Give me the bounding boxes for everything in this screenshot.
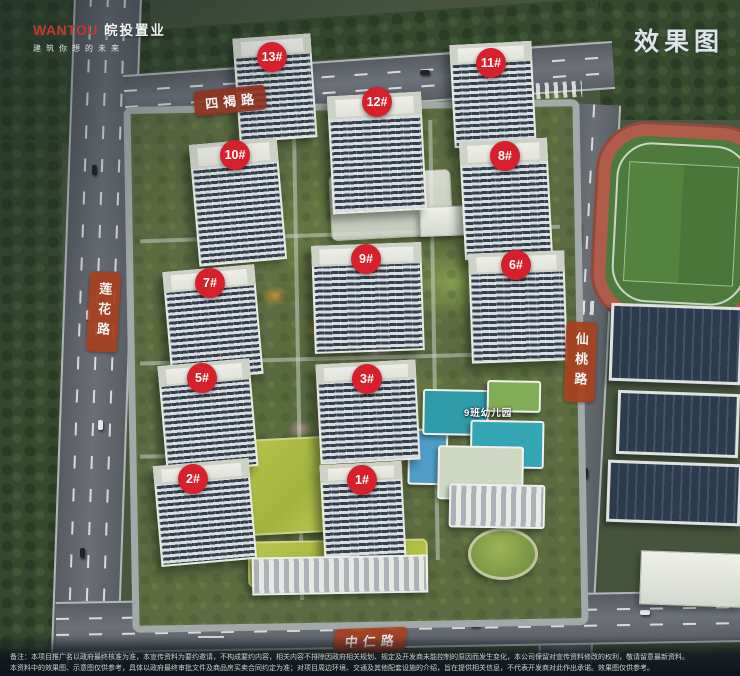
rendering-watermark: 效果图: [634, 22, 724, 58]
building-marker-13: 13#: [257, 42, 287, 72]
building-marker-9: 9#: [351, 244, 381, 274]
building-marker-1: 1#: [347, 465, 377, 495]
building-marker-12: 12#: [362, 87, 392, 117]
disclaimer-line-2: 本资料中的效果图、示意图仅供参考，具体以政府最终审批文件及商品房买卖合同约定为准…: [10, 663, 730, 674]
aerial-rendering: 13#12#11#10#8#9#6#7#5#3#2#1# 四褐路 莲花路 仙桃路…: [0, 0, 740, 676]
logo-cn: 皖投置业: [104, 19, 166, 39]
building-marker-11: 11#: [476, 48, 506, 78]
building-marker-5: 5#: [187, 363, 217, 393]
building-marker-3: 3#: [352, 364, 382, 394]
building-marker-6: 6#: [501, 250, 531, 280]
brand-tagline: 建筑你想的未来: [33, 43, 166, 54]
disclaimer-line-1: 备注：本项目推广名以政府最终核准为准，本宣传资料为要约邀请，不构成要约内容，相关…: [10, 652, 730, 663]
developer-logo: WANTOU 皖投置业 建筑你想的未来: [33, 19, 166, 54]
building-marker-7: 7#: [195, 268, 225, 298]
building-marker-2: 2#: [178, 464, 208, 494]
disclaimer-text: 备注：本项目推广名以政府最终核准为准，本宣传资料为要约邀请，不构成要约内容，相关…: [10, 652, 730, 674]
building-marker-layer: 13#12#11#10#8#9#6#7#5#3#2#1#: [0, 0, 740, 676]
building-marker-10: 10#: [220, 140, 250, 170]
logo-en: WANTOU: [33, 22, 98, 38]
building-marker-8: 8#: [490, 141, 520, 171]
